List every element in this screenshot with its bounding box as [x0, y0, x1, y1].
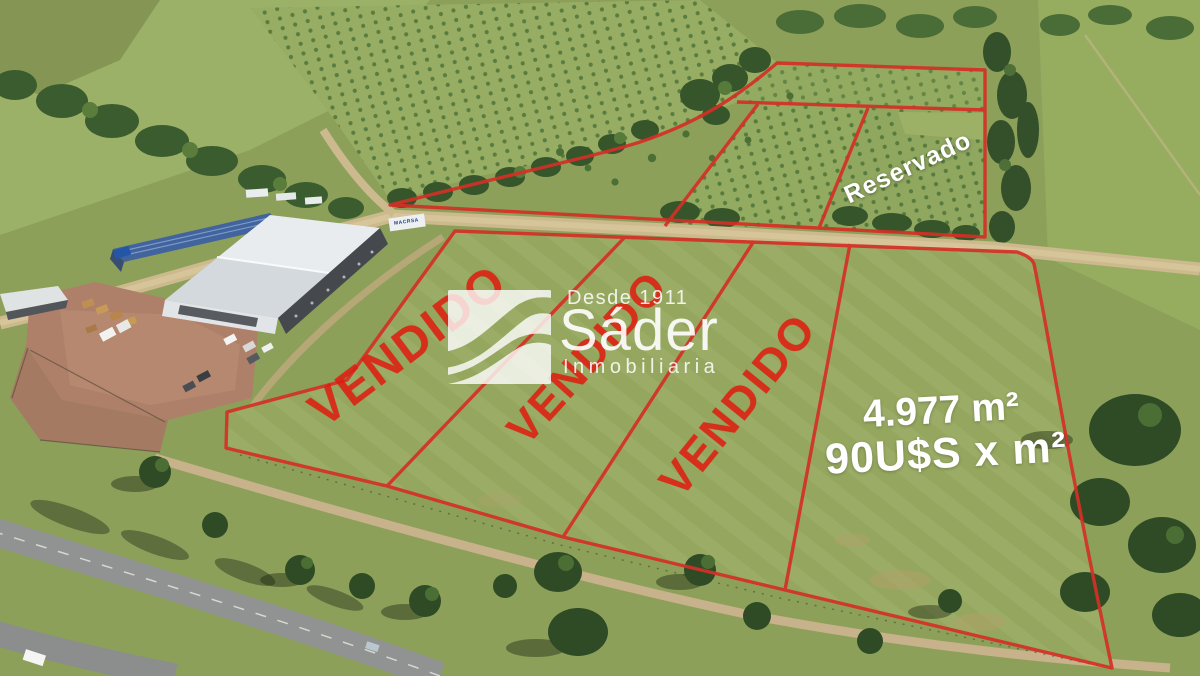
brand-name: Sáder [559, 297, 719, 364]
listing-photo: VENDIDO VENDIDO VENDIDO Reservado 4.977 … [0, 0, 1200, 676]
brand-logo-icon [448, 290, 551, 384]
brand-subtitle: Inmobiliaria [563, 356, 719, 379]
